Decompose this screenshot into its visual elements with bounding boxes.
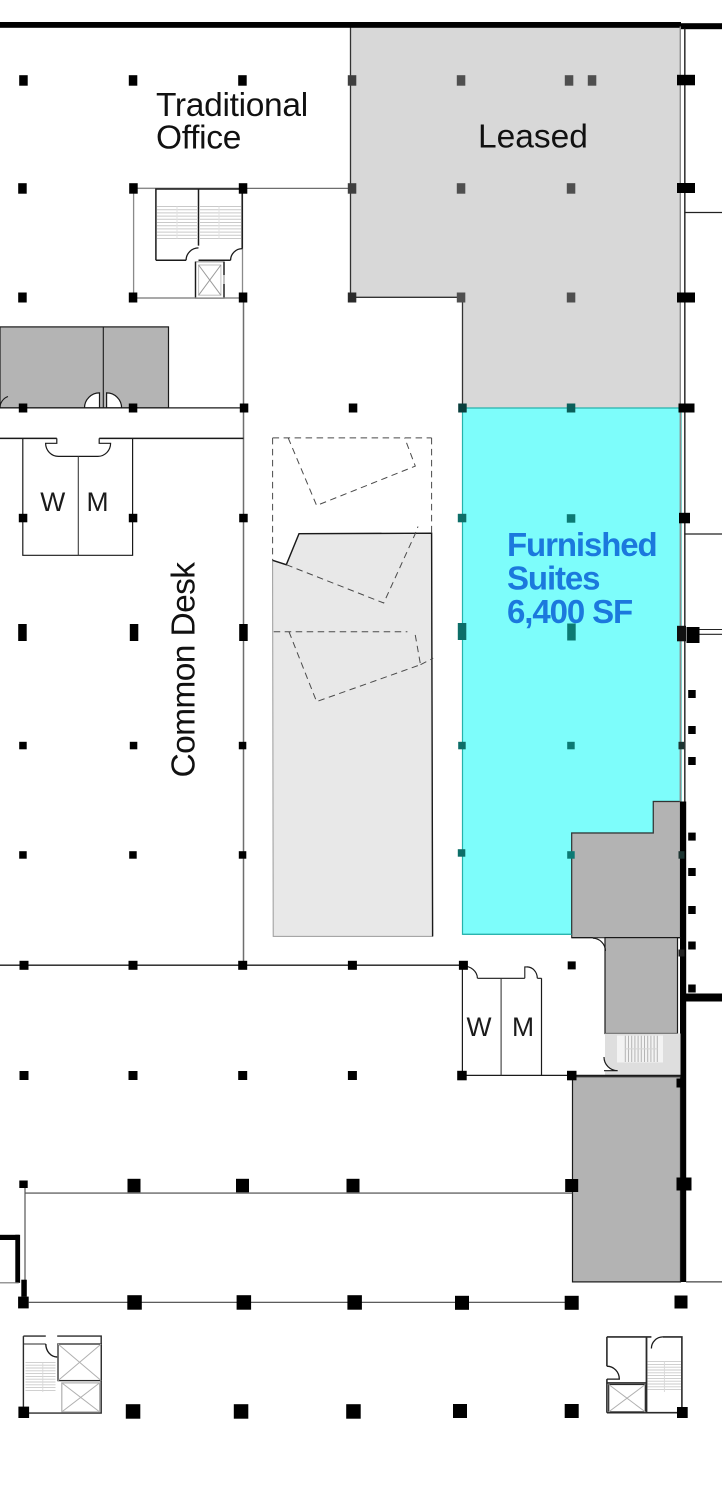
svg-text:W: W bbox=[466, 1012, 491, 1042]
svg-text:Traditional: Traditional bbox=[156, 87, 308, 124]
svg-text:Suites: Suites bbox=[507, 560, 599, 597]
svg-text:Common Desk: Common Desk bbox=[166, 562, 203, 778]
svg-text:M: M bbox=[512, 1012, 534, 1042]
svg-text:Office: Office bbox=[156, 120, 241, 157]
svg-text:M: M bbox=[86, 487, 108, 517]
svg-text:6,400 SF: 6,400 SF bbox=[507, 593, 632, 630]
svg-text:W: W bbox=[40, 487, 65, 517]
svg-text:Furnished: Furnished bbox=[507, 526, 657, 563]
svg-text:Leased: Leased bbox=[478, 119, 588, 156]
